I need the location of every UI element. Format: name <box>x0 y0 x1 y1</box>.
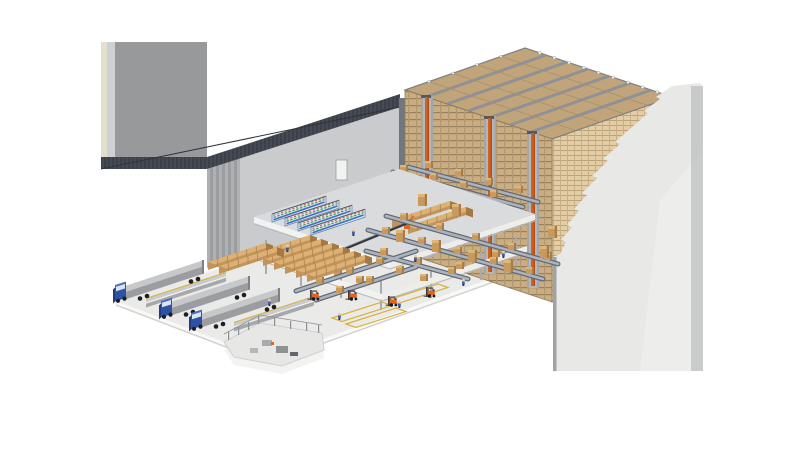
gable-cut-edge <box>207 158 240 268</box>
end-wall-corner-edge <box>101 42 107 157</box>
end-wall-corner-edge2 <box>107 42 115 157</box>
enclosure-robot <box>271 342 274 345</box>
warehouse-scene <box>0 0 794 450</box>
warehouse-illustration <box>0 0 794 450</box>
mast-shade <box>534 133 535 286</box>
wall-right-edge <box>691 86 703 371</box>
wall-left-corner <box>553 257 557 371</box>
end-wall <box>115 42 207 157</box>
wall-doorway <box>336 160 347 180</box>
